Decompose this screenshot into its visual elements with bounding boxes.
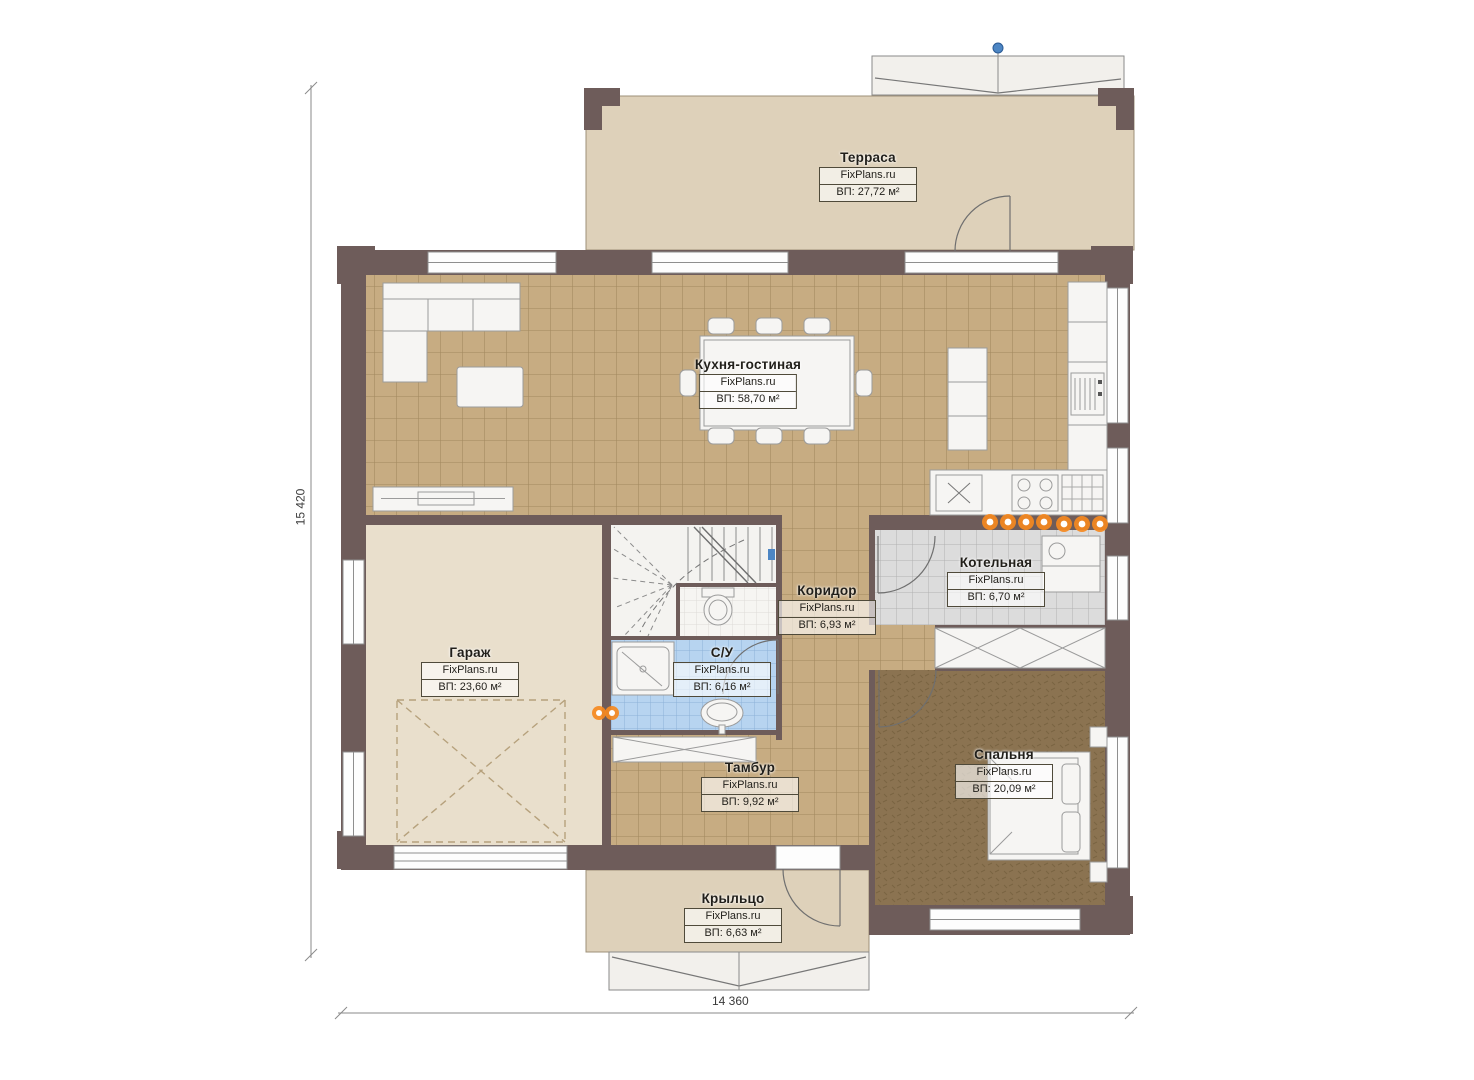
level-marker [768,549,775,560]
wardrobe-band [935,628,1105,668]
window [1107,556,1128,620]
room-label-tambour: Тамбур FixPlans.ru ВП: 9,92 м² [701,760,799,812]
tv-stand [373,487,513,511]
room-area: ВП: 6,93 м² [779,618,875,634]
room-area: ВП: 58,70 м² [700,392,796,408]
fridge-icon [1071,373,1104,415]
brand-text: FixPlans.ru [685,909,781,926]
stove-icon [1012,475,1058,511]
coffee-table [457,367,523,407]
room-area: ВП: 6,16 м² [674,680,770,696]
window [428,252,556,273]
room-info-box: FixPlans.ru ВП: 20,09 м² [955,764,1053,799]
brand-text: FixPlans.ru [422,663,518,680]
window [930,909,1080,930]
sink-icon [936,475,982,511]
room-info-box: FixPlans.ru ВП: 58,70 м² [699,374,797,409]
shower-tray [612,642,674,695]
brand-text: FixPlans.ru [956,765,1052,782]
room-area: ВП: 6,70 м² [948,590,1044,606]
nightstand [1090,862,1107,882]
nightstand [1090,727,1107,747]
room-info-box: FixPlans.ru ВП: 9,92 м² [701,777,799,812]
floor-plan-page: Терраса FixPlans.ru ВП: 27,72 м² Кухня-г… [0,0,1474,1080]
room-label-terrace: Терраса FixPlans.ru ВП: 27,72 м² [819,150,917,202]
room-area: ВП: 27,72 м² [820,185,916,201]
kitchen-counter-bottom [930,470,1107,515]
boiler-unit [1042,536,1100,592]
terrace-door-opening [905,252,1058,273]
room-info-box: FixPlans.ru ВП: 6,93 м² [778,600,876,635]
room-area: ВП: 20,09 м² [956,782,1052,798]
porch-steps [609,952,869,990]
kitchen-counter-right [1068,282,1107,472]
room-area: ВП: 23,60 м² [422,680,518,696]
window [652,252,788,273]
room-name: С/У [673,645,771,660]
dimension-width: 14 360 [712,994,749,1008]
brand-text: FixPlans.ru [820,168,916,185]
room-name: Тамбур [701,760,799,775]
window [343,560,364,644]
window [1107,737,1128,868]
terrace-steps [872,43,1124,95]
room-label-porch: Крыльцо FixPlans.ru ВП: 6,63 м² [684,891,782,943]
room-info-box: FixPlans.ru ВП: 27,72 м² [819,167,917,202]
room-name: Терраса [819,150,917,165]
room-label-bedroom: Спальня FixPlans.ru ВП: 20,09 м² [955,747,1053,799]
toilet-icon [702,588,734,625]
kitchen-island [948,348,987,450]
bedroom-passage-floor [869,625,935,670]
room-name: Гараж [421,645,519,660]
room-info-box: FixPlans.ru ВП: 6,16 м² [673,662,771,697]
brand-text: FixPlans.ru [779,601,875,618]
dishwasher-icon [1062,475,1103,511]
brand-text: FixPlans.ru [674,663,770,680]
entrance-door-opening [776,846,840,869]
terrace-structure [584,43,1134,250]
window [1107,448,1128,523]
dimension-height: 15 420 [293,489,307,526]
room-name: Крыльцо [684,891,782,906]
room-name: Котельная [947,555,1045,570]
brand-text: FixPlans.ru [948,573,1044,590]
room-label-kitchen: Кухня-гостиная FixPlans.ru ВП: 58,70 м² [695,357,801,409]
room-info-box: FixPlans.ru ВП: 6,63 м² [684,908,782,943]
room-name: Спальня [955,747,1053,762]
room-label-boiler: Котельная FixPlans.ru ВП: 6,70 м² [947,555,1045,607]
room-label-garage: Гараж FixPlans.ru ВП: 23,60 м² [421,645,519,697]
garage-door [394,846,567,869]
room-label-bathroom: С/У FixPlans.ru ВП: 6,16 м² [673,645,771,697]
window [343,752,364,836]
room-area: ВП: 9,92 м² [702,795,798,811]
brand-text: FixPlans.ru [702,778,798,795]
room-info-box: FixPlans.ru ВП: 6,70 м² [947,572,1045,607]
room-name: Коридор [778,583,876,598]
room-area: ВП: 6,63 м² [685,926,781,942]
room-name: Кухня-гостиная [695,357,801,372]
window [1107,288,1128,423]
brand-text: FixPlans.ru [700,375,796,392]
tambour-closet [613,737,756,762]
room-label-corridor: Коридор FixPlans.ru ВП: 6,93 м² [778,583,876,635]
level-marker [993,43,1003,53]
room-info-box: FixPlans.ru ВП: 23,60 м² [421,662,519,697]
